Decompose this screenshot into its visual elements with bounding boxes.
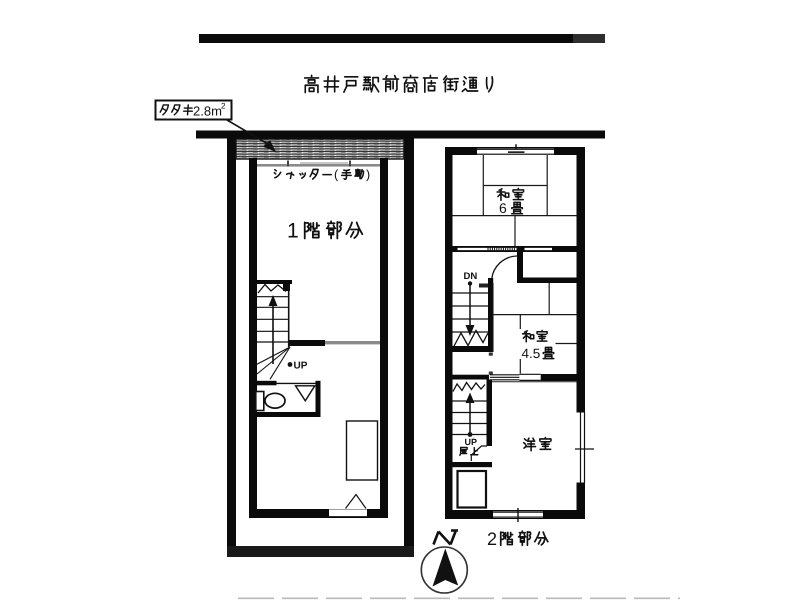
svg-text:1: 1: [287, 220, 299, 243]
svg-text:6: 6: [499, 200, 507, 216]
svg-text:(: (: [334, 168, 339, 182]
svg-text:UP: UP: [294, 361, 308, 372]
svg-text:): ): [366, 168, 370, 182]
svg-text:2: 2: [221, 102, 226, 111]
svg-text:2: 2: [487, 529, 497, 549]
svg-text:4.5: 4.5: [522, 346, 541, 361]
svg-text:2.8m: 2.8m: [193, 104, 222, 119]
svg-text:DN: DN: [464, 271, 478, 282]
svg-text:UP: UP: [465, 437, 478, 447]
